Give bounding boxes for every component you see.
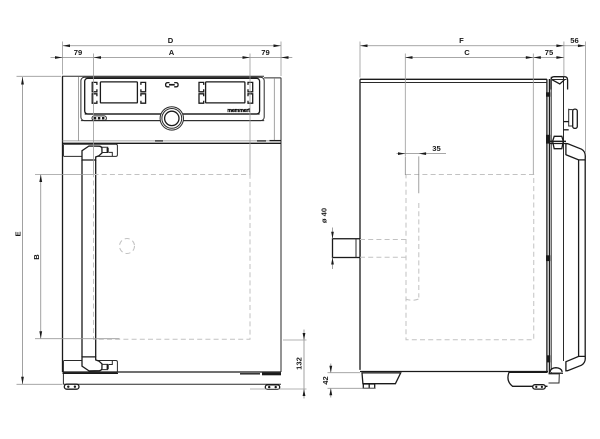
svg-text:memmert: memmert	[227, 108, 250, 114]
svg-text:79: 79	[74, 48, 82, 57]
svg-text:F: F	[459, 36, 464, 45]
svg-text:42: 42	[321, 376, 330, 384]
svg-text:E: E	[13, 231, 22, 236]
svg-text:D: D	[168, 36, 174, 45]
svg-text:79: 79	[261, 48, 269, 57]
svg-text:56: 56	[570, 36, 578, 45]
svg-text:132: 132	[295, 357, 304, 370]
svg-text:35: 35	[432, 144, 441, 153]
svg-text:ø 40: ø 40	[319, 208, 328, 223]
svg-text:C: C	[464, 48, 470, 57]
svg-text:75: 75	[545, 48, 554, 57]
svg-text:B: B	[32, 254, 41, 260]
svg-text:A: A	[169, 48, 175, 57]
